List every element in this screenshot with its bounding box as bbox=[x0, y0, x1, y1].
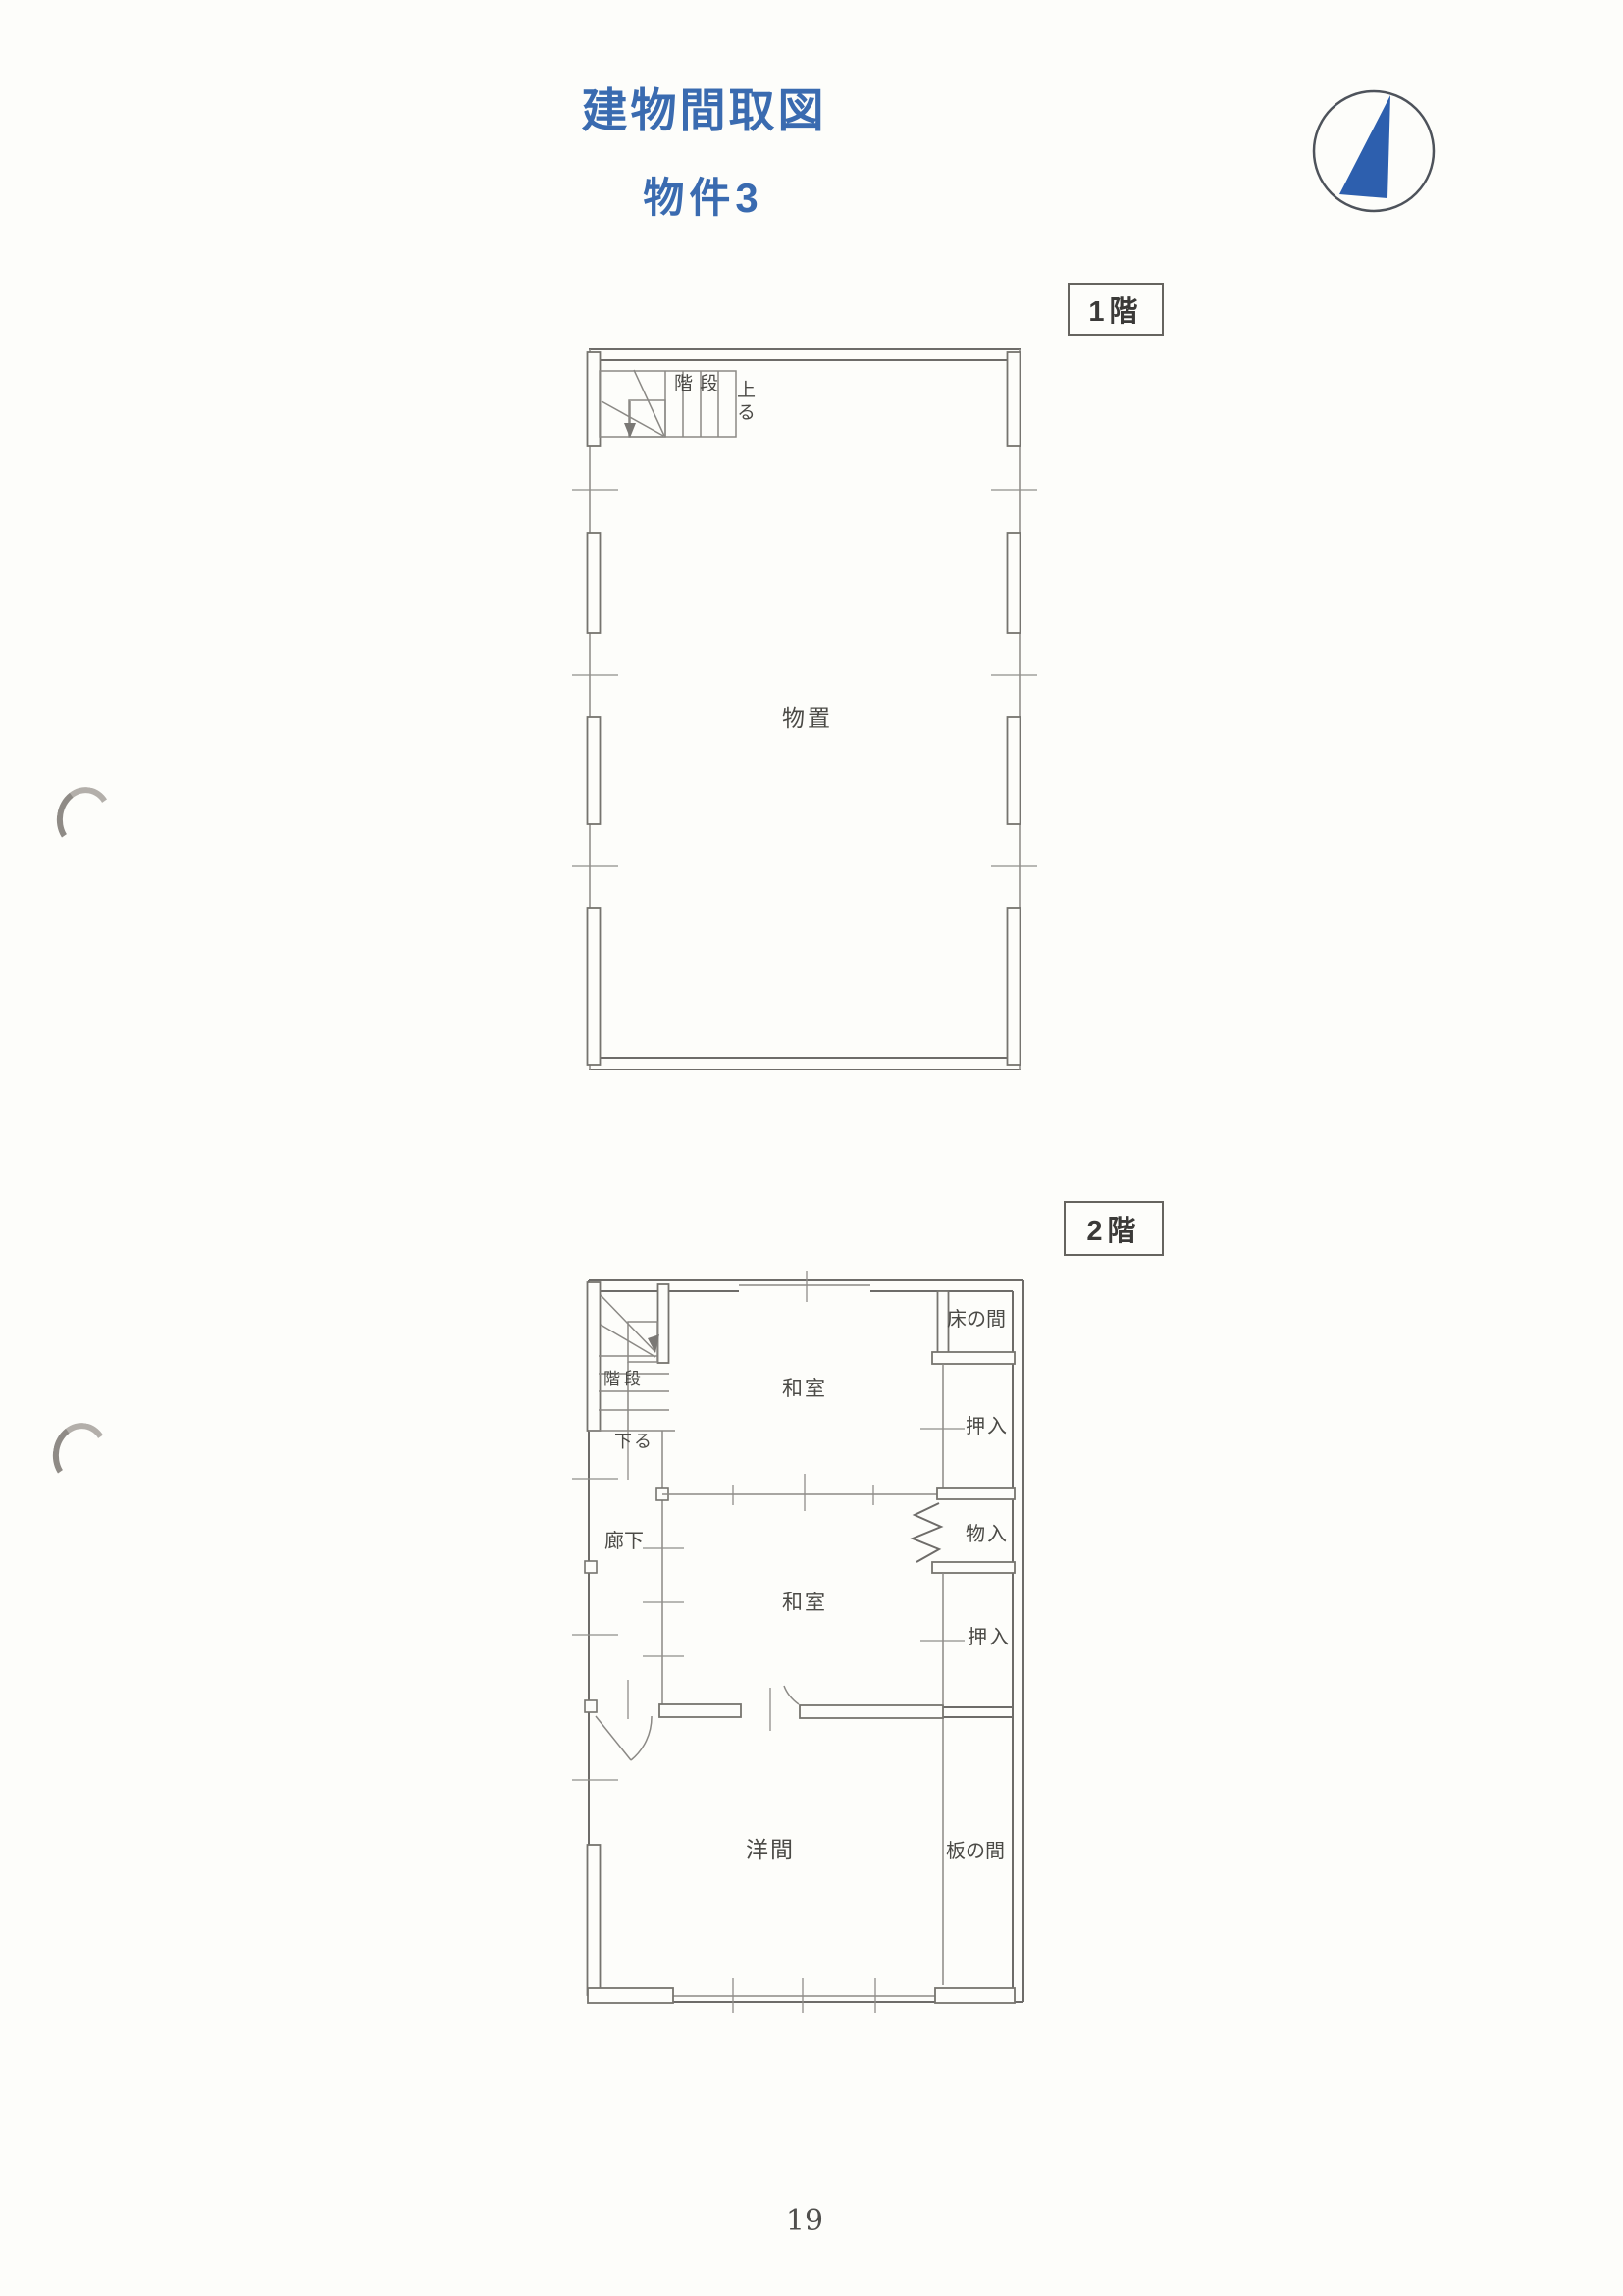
room-label-tokonoma: 床の間 bbox=[947, 1310, 1006, 1330]
floor1-stairs-label: 階段 bbox=[674, 375, 725, 393]
page-number: 19 bbox=[765, 2204, 844, 2238]
room-label-storage: 物置 bbox=[782, 707, 833, 730]
floor2-badge-label: 2階 bbox=[1086, 1208, 1140, 1249]
floor2-corridor-wall bbox=[643, 1431, 684, 1705]
binder-hole-shadow-1 bbox=[52, 783, 117, 855]
floor1-badge-label: 1階 bbox=[1088, 288, 1142, 330]
floor1-badge: 1階 bbox=[1068, 283, 1164, 336]
binder-hole-shadow-2 bbox=[48, 1419, 113, 1490]
room-label-oshiire-upper: 押入 bbox=[966, 1417, 1009, 1436]
scanned-floorplan-page: 建物間取図 物件3 1階 bbox=[0, 0, 1623, 2296]
room-label-washitsu-upper: 和室 bbox=[782, 1379, 827, 1399]
room-label-oshiire-middle: 押入 bbox=[968, 1628, 1011, 1647]
room-label-washitsu-middle: 和室 bbox=[782, 1592, 827, 1613]
property-label: 物件3 bbox=[451, 165, 955, 225]
room-label-monoire: 物入 bbox=[966, 1525, 1009, 1544]
room-label-itanoma: 板の間 bbox=[946, 1842, 1005, 1861]
room-label-corridor: 廊下 bbox=[604, 1532, 644, 1551]
room-label-youma: 洋間 bbox=[746, 1839, 795, 1861]
floor2-stairs-direction-down: 下る bbox=[614, 1433, 654, 1450]
floor1-grid-ticks bbox=[572, 490, 1037, 866]
north-compass-icon bbox=[1305, 83, 1447, 226]
floor2-badge: 2階 bbox=[1064, 1201, 1164, 1256]
floor2-corridor-door bbox=[596, 1680, 652, 1760]
floor2-stairs-label: 階段 bbox=[603, 1371, 645, 1387]
floor2-room-partitions bbox=[662, 1291, 1015, 1985]
floor1-stairs-direction-up: 上る bbox=[735, 380, 754, 425]
page-title: 建物間取図 bbox=[451, 73, 957, 140]
floor2-sliding-doors bbox=[659, 1686, 943, 1731]
